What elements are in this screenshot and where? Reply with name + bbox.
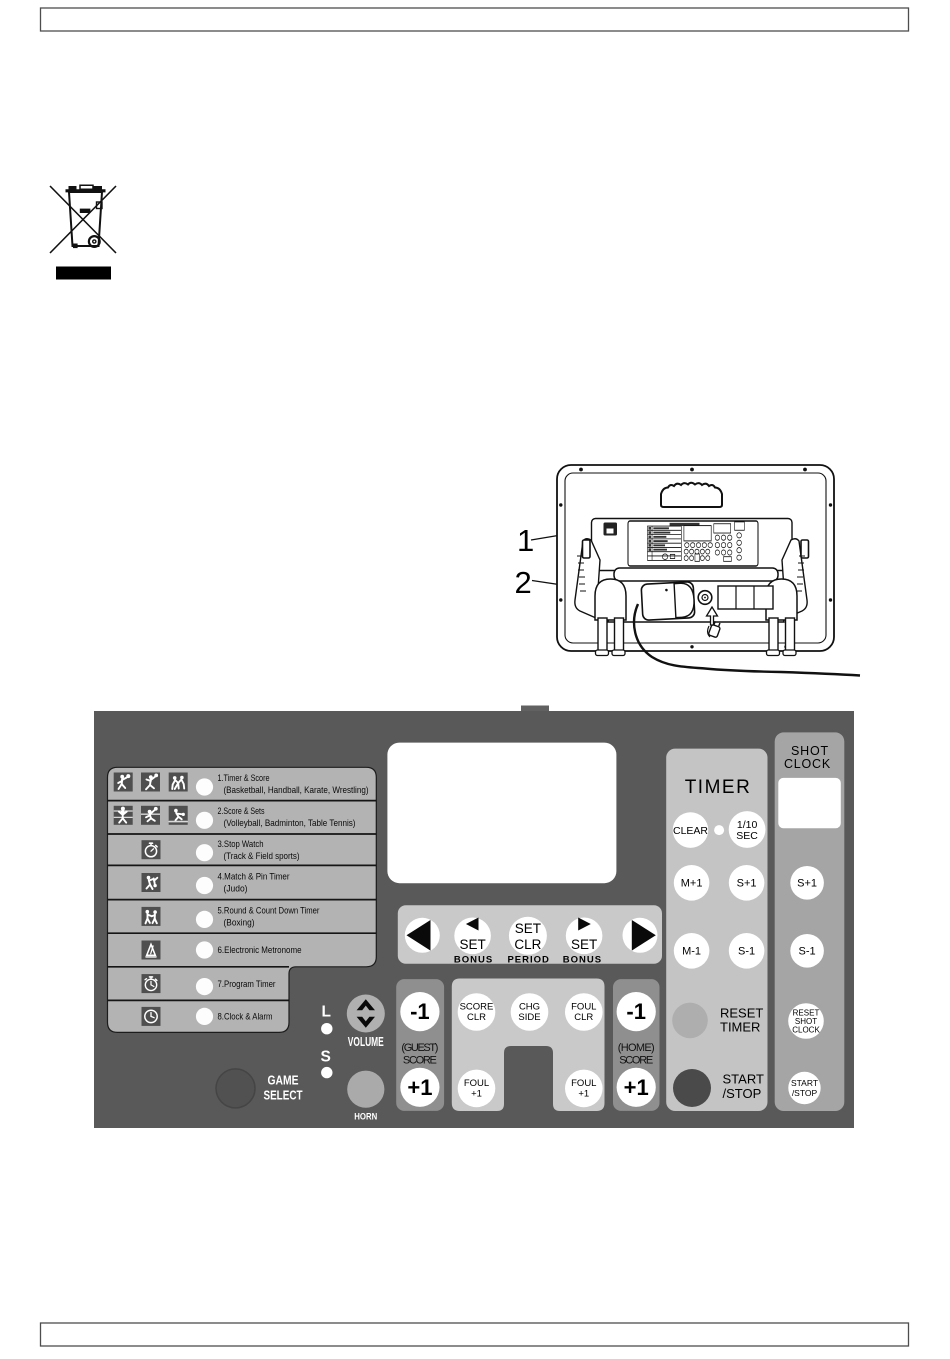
svg-text:S+1: S+1 [797,878,817,890]
svg-text:2.Score & Sets: 2.Score & Sets [218,806,265,816]
svg-text:4.Match & Pin Timer: 4.Match & Pin Timer [218,872,290,882]
svg-text:(Volleyball, Badminton, Table: (Volleyball, Badminton, Table Tennis) [224,818,356,828]
svg-text:M+1: M+1 [681,878,703,890]
svg-text:SCORE: SCORE [403,1055,437,1067]
svg-text:CLR: CLR [467,1012,486,1023]
svg-text:FOUL: FOUL [571,1078,596,1089]
svg-text:S-1: S-1 [799,946,816,958]
svg-text:SHOT: SHOT [791,744,829,758]
svg-text:+1: +1 [407,1075,432,1100]
svg-text:SEC: SEC [736,830,758,842]
svg-text:-1: -1 [626,999,646,1024]
svg-text:TIMER: TIMER [720,1020,760,1035]
svg-text:SELECT: SELECT [264,1088,303,1103]
svg-text:+1: +1 [471,1089,482,1100]
svg-text:CLOCK: CLOCK [784,757,831,771]
svg-text:7.Program Timer: 7.Program Timer [218,979,276,989]
svg-text:VOLUME: VOLUME [348,1035,384,1049]
svg-text:START: START [791,1078,818,1088]
svg-text:BONUS: BONUS [454,955,493,966]
svg-text:SET: SET [515,921,541,936]
svg-text:CHG: CHG [519,1002,540,1013]
svg-text:5.Round & Count Down Timer: 5.Round & Count Down Timer [218,906,320,916]
svg-text:CLR: CLR [574,1012,593,1023]
svg-text:M-1: M-1 [682,946,701,958]
svg-text:(Track & Field sports): (Track & Field sports) [224,851,300,861]
svg-text:L: L [322,1004,331,1021]
svg-text:CLOCK: CLOCK [792,1026,820,1035]
svg-text:1.Timer & Score: 1.Timer & Score [218,773,270,783]
svg-text:S-1: S-1 [738,946,755,958]
svg-text:SCORE: SCORE [619,1055,653,1067]
svg-text:FOUL: FOUL [571,1002,596,1013]
svg-text:/STOP: /STOP [723,1086,762,1101]
svg-text:BONUS: BONUS [563,955,602,966]
svg-text:CLR: CLR [514,937,541,952]
svg-text:START: START [723,1072,764,1087]
svg-text:PERIOD: PERIOD [507,955,549,966]
svg-text:SET: SET [571,937,597,952]
svg-text:2: 2 [515,565,532,600]
svg-text:HORN: HORN [354,1112,377,1123]
svg-text:FOUL: FOUL [464,1078,489,1089]
svg-text:(Boxing): (Boxing) [224,918,255,928]
svg-text:3.Stop Watch: 3.Stop Watch [218,839,264,849]
svg-text:S+1: S+1 [737,878,757,890]
svg-text:RESET: RESET [720,1006,763,1021]
svg-text:8.Clock & Alarm: 8.Clock & Alarm [218,1012,273,1022]
svg-text:GAME: GAME [268,1073,299,1088]
svg-text:SET: SET [459,937,485,952]
svg-text:-1: -1 [410,999,430,1024]
svg-text:+1: +1 [624,1075,649,1100]
svg-text:SIDE: SIDE [518,1012,540,1023]
svg-text:(Judo): (Judo) [224,884,248,894]
svg-text:/STOP: /STOP [792,1088,818,1098]
svg-text:(GUEST): (GUEST) [401,1042,438,1054]
svg-text:6.Electronic Metronome: 6.Electronic Metronome [218,945,302,955]
svg-text:S: S [321,1049,331,1066]
svg-text:+1: +1 [578,1089,589,1100]
svg-text:CLEAR: CLEAR [673,825,708,837]
svg-text:SCORE: SCORE [460,1002,494,1013]
svg-text:(HOME): (HOME) [618,1042,655,1054]
svg-text:(Basketball, Handball, Karate,: (Basketball, Handball, Karate, Wrestling… [224,785,369,795]
svg-text:TIMER: TIMER [685,777,752,798]
